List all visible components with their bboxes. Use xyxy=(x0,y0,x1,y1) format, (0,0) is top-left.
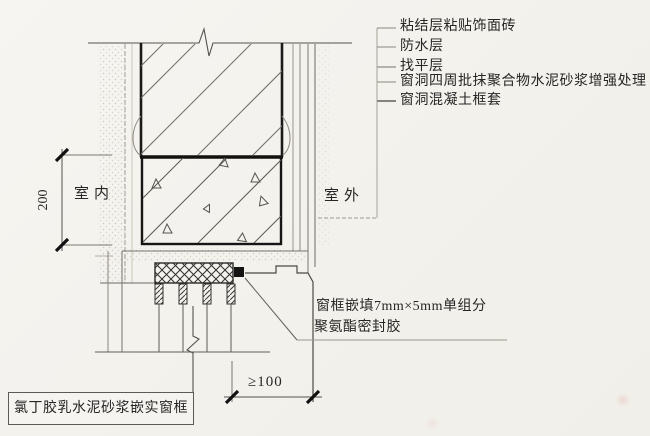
label-concrete-frame: 窗洞混凝土框套 xyxy=(400,93,502,109)
label-opening-reinforcement: 窗洞四周批抹聚合物水泥砂浆增强处理 xyxy=(400,74,647,90)
sealant-strip xyxy=(155,263,244,283)
aggregate-triangles xyxy=(152,157,268,241)
scan-smudge xyxy=(428,420,437,427)
label-sealant-line1: 窗框嵌填7mm×5mm单组分 xyxy=(316,298,486,315)
sealant-backer-square xyxy=(234,267,244,277)
label-waterproof-layer: 防水层 xyxy=(400,39,444,55)
drawing-linework xyxy=(0,0,650,436)
label-frame-bed-boxed: 氯丁胶乳水泥砂浆嵌实窗框 xyxy=(8,392,194,425)
label-room-exterior: 室外 xyxy=(324,184,364,205)
window-frame-posts xyxy=(155,284,235,352)
label-tile-adhesive-layer: 粘结层粘贴饰面砖 xyxy=(400,19,516,35)
label-sealant-line2: 聚氨酯密封胶 xyxy=(314,319,401,336)
bottom-break-leader xyxy=(187,306,199,392)
top-break-line xyxy=(88,29,352,56)
dimension-100-text: ≥100 xyxy=(248,374,283,391)
label-room-interior: 室内 xyxy=(74,182,114,203)
dimension-200-text: 200 xyxy=(36,180,64,220)
construction-detail-drawing: 粘结层粘贴饰面砖 防水层 找平层 窗洞四周批抹聚合物水泥砂浆增强处理 窗洞混凝土… xyxy=(0,0,650,436)
masonry-hatch xyxy=(138,42,284,157)
scan-smudge xyxy=(618,396,628,404)
label-leveling-layer: 找平层 xyxy=(400,59,444,75)
concrete-frame-block xyxy=(140,157,283,244)
